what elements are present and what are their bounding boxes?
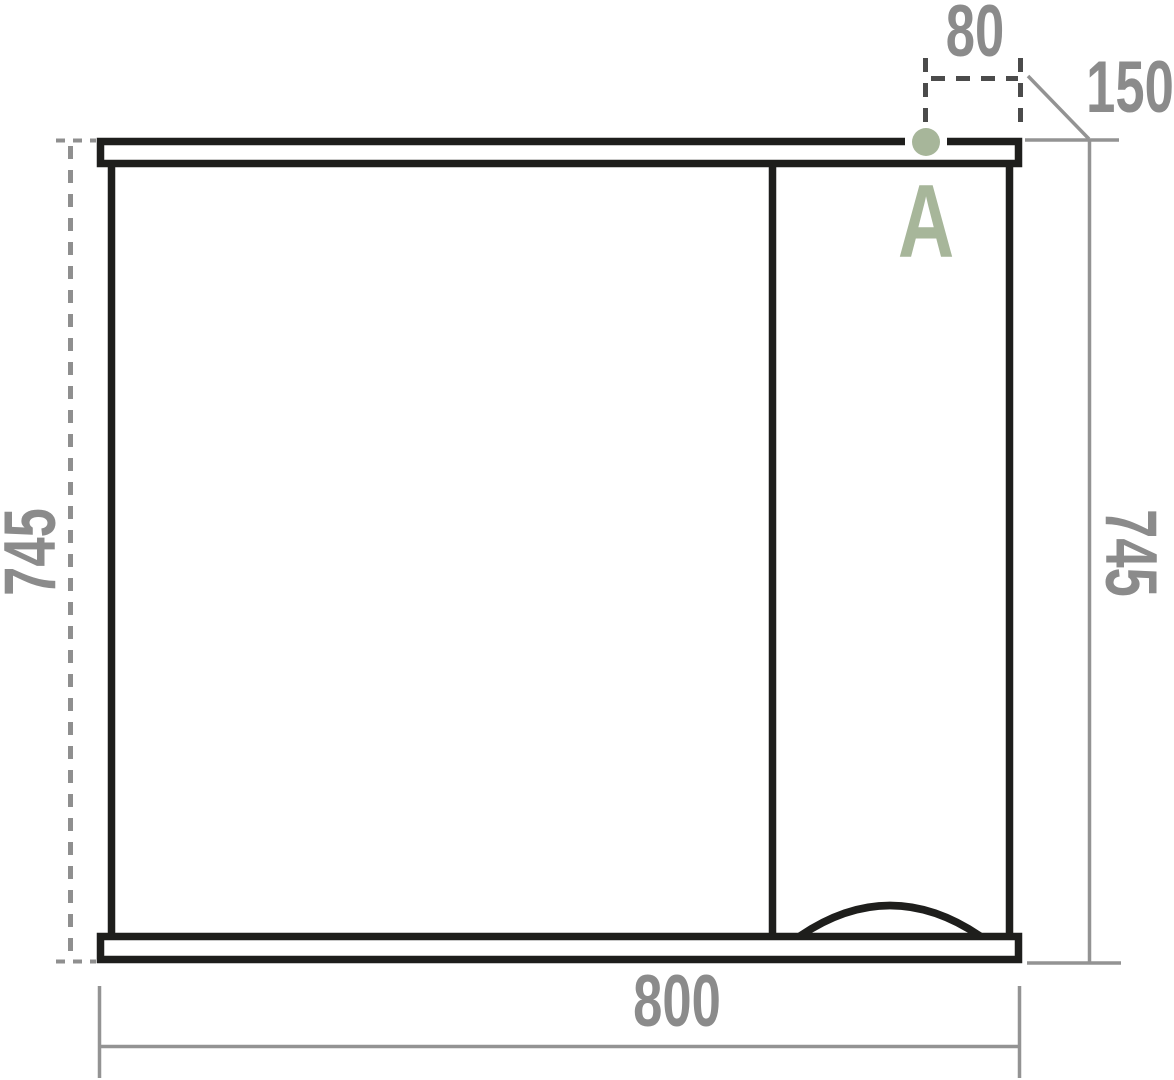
dimension-label-height-right: 745 (1090, 509, 1171, 597)
dimension-label-overall-width: 800 (633, 961, 721, 1042)
dimension-label-height-left: 745 (0, 508, 71, 596)
cabinet-top-shelf (101, 142, 1019, 164)
cabinet-bottom-shelf (101, 937, 1019, 960)
mounting-point-dot (912, 128, 940, 156)
cabinet-dimension-drawing: 80 150 745 745 800 A (0, 0, 1174, 1080)
dimension-label-top-offset: 80 (946, 0, 1004, 72)
dimension-label-side-width: 150 (1086, 47, 1174, 128)
technical-drawing-canvas: 80 150 745 745 800 A (0, 0, 1174, 1080)
section-point-label: A (898, 164, 954, 279)
curved-shelf-detail (800, 906, 980, 937)
side-width-leader-diagonal (1028, 76, 1089, 139)
